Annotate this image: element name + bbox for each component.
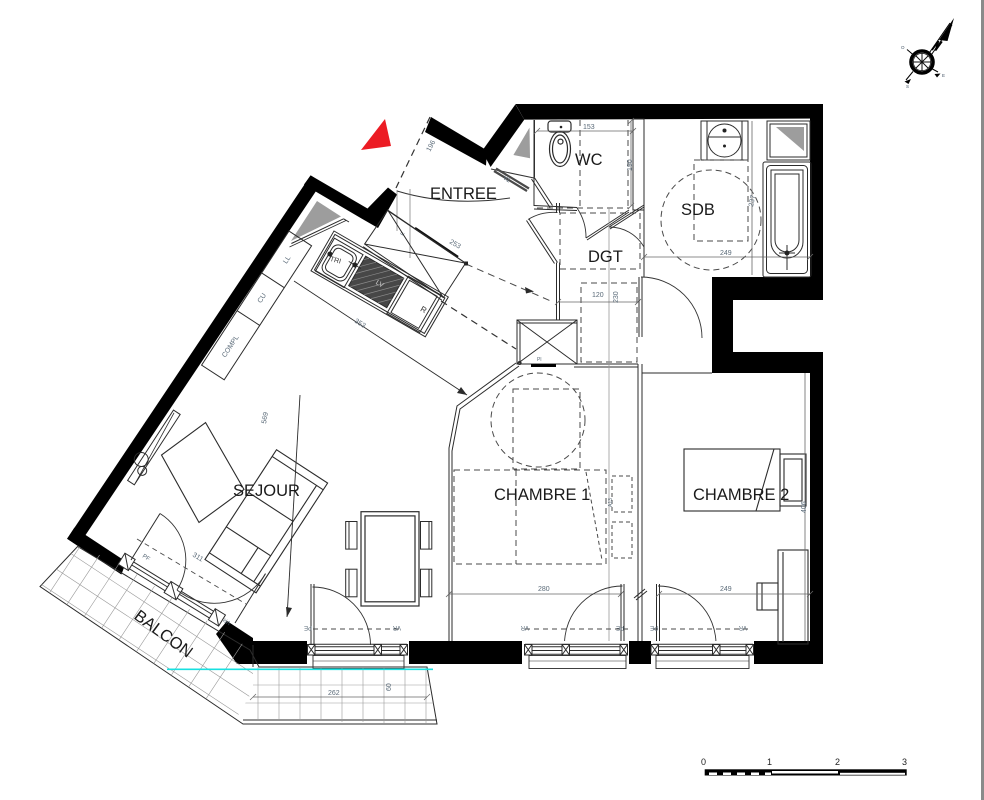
svg-text:CHAMBRE 2: CHAMBRE 2 <box>693 486 789 504</box>
svg-text:153: 153 <box>583 124 595 131</box>
svg-text:E: E <box>942 73 945 78</box>
svg-text:Pl: Pl <box>537 357 541 363</box>
svg-text:ENTREE: ENTREE <box>430 185 497 203</box>
svg-text:PE: PE <box>616 624 624 630</box>
svg-text:2: 2 <box>835 757 840 767</box>
svg-text:A13: A13 <box>608 498 614 507</box>
svg-text:280: 280 <box>538 586 550 593</box>
svg-text:230: 230 <box>613 291 620 303</box>
svg-text:262: 262 <box>328 690 340 697</box>
svg-text:PE: PE <box>304 624 312 630</box>
svg-text:60: 60 <box>386 683 393 691</box>
svg-text:190: 190 <box>627 159 634 171</box>
svg-text:PE: PE <box>650 624 658 630</box>
svg-text:249: 249 <box>720 250 732 257</box>
svg-text:VR: VR <box>392 624 401 630</box>
svg-text:406: 406 <box>801 501 808 513</box>
svg-text:DGT: DGT <box>588 248 623 266</box>
svg-text:3: 3 <box>902 757 907 767</box>
svg-text:WC: WC <box>575 151 603 169</box>
svg-text:120: 120 <box>592 292 604 299</box>
svg-text:249: 249 <box>720 586 732 593</box>
svg-text:VR: VR <box>738 624 747 630</box>
svg-text:SEJOUR: SEJOUR <box>233 482 300 500</box>
svg-text:O: O <box>901 45 905 50</box>
svg-text:SDB: SDB <box>681 201 715 219</box>
svg-text:CHAMBRE 1: CHAMBRE 1 <box>494 486 590 504</box>
svg-text:S: S <box>906 84 909 89</box>
svg-text:VR: VR <box>520 624 529 630</box>
svg-text:0: 0 <box>701 757 706 767</box>
svg-text:1: 1 <box>767 757 772 767</box>
